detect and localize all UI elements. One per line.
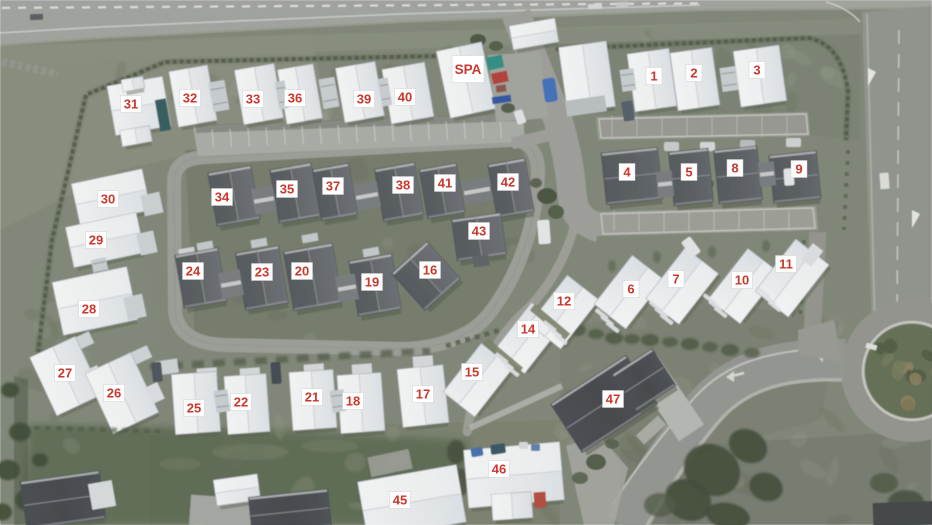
- svg-text:11: 11: [779, 257, 793, 272]
- svg-text:15: 15: [465, 365, 479, 380]
- svg-text:39: 39: [357, 92, 371, 107]
- svg-text:40: 40: [398, 90, 412, 105]
- svg-text:27: 27: [58, 366, 72, 381]
- svg-text:3: 3: [753, 63, 760, 78]
- svg-text:21: 21: [305, 390, 319, 405]
- svg-text:36: 36: [288, 91, 302, 106]
- svg-text:34: 34: [215, 190, 230, 205]
- svg-text:29: 29: [89, 233, 103, 248]
- svg-text:14: 14: [521, 322, 536, 337]
- svg-text:41: 41: [438, 176, 452, 191]
- svg-text:24: 24: [186, 264, 201, 279]
- svg-text:1: 1: [650, 69, 657, 84]
- svg-text:10: 10: [735, 273, 749, 288]
- svg-text:17: 17: [416, 387, 430, 402]
- svg-text:5: 5: [685, 165, 692, 180]
- svg-text:16: 16: [423, 263, 437, 278]
- svg-text:47: 47: [606, 392, 620, 407]
- svg-text:22: 22: [234, 395, 248, 410]
- svg-text:38: 38: [396, 178, 410, 193]
- svg-text:32: 32: [183, 91, 197, 106]
- svg-text:30: 30: [101, 192, 115, 207]
- svg-text:SPA: SPA: [455, 62, 482, 77]
- svg-text:33: 33: [246, 92, 260, 107]
- svg-text:28: 28: [82, 302, 96, 317]
- svg-text:42: 42: [501, 175, 515, 190]
- svg-text:31: 31: [124, 97, 138, 112]
- svg-text:12: 12: [557, 294, 571, 309]
- svg-text:19: 19: [365, 275, 379, 290]
- svg-text:9: 9: [795, 162, 802, 177]
- svg-text:45: 45: [393, 493, 407, 508]
- svg-text:4: 4: [623, 165, 631, 180]
- svg-text:37: 37: [326, 179, 340, 194]
- svg-text:23: 23: [255, 265, 269, 280]
- svg-text:35: 35: [280, 182, 294, 197]
- svg-text:18: 18: [346, 394, 360, 409]
- svg-text:43: 43: [472, 224, 486, 239]
- svg-text:8: 8: [731, 161, 738, 176]
- svg-text:25: 25: [187, 401, 201, 416]
- svg-text:20: 20: [295, 264, 309, 279]
- svg-text:6: 6: [627, 282, 634, 297]
- svg-text:26: 26: [107, 386, 121, 401]
- svg-text:2: 2: [690, 66, 697, 81]
- svg-text:46: 46: [492, 462, 506, 477]
- svg-text:7: 7: [672, 272, 679, 287]
